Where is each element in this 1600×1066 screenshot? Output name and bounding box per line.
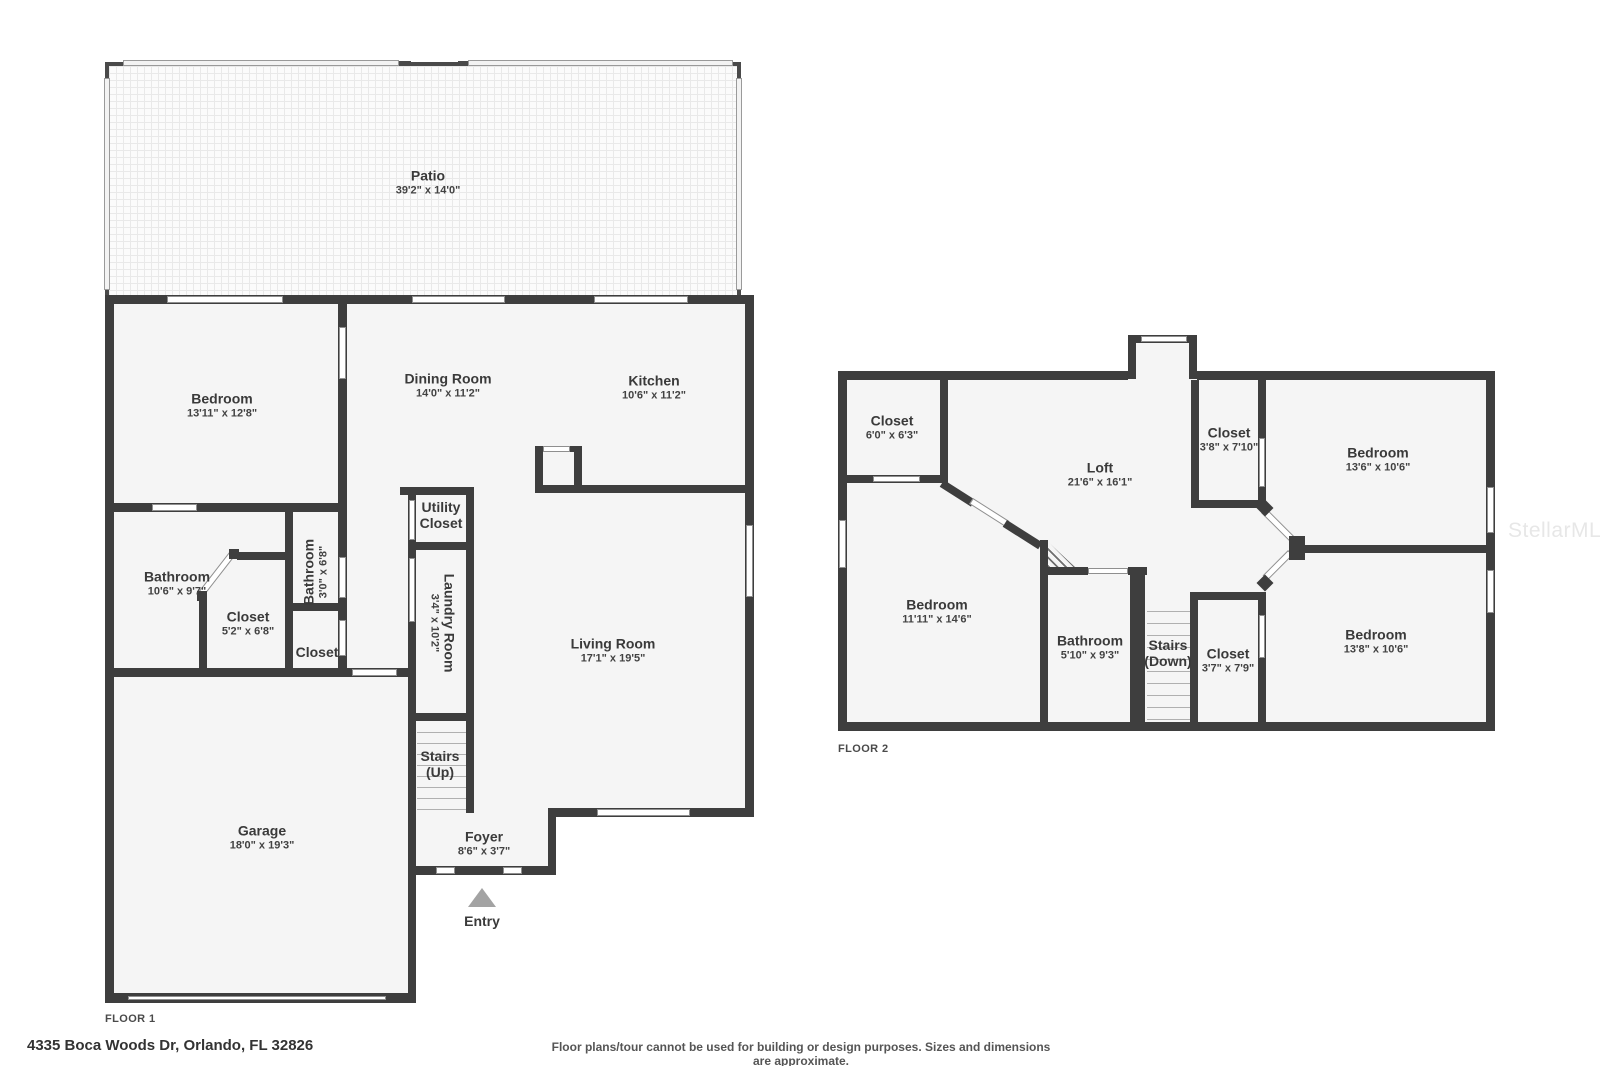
window-or-door [412,296,505,303]
floorplan-page: Patio 39'2" x 14'0" Bedroom 13'11" x 12'… [0,0,1600,1066]
room-label-living: Living Room 17'1" x 19'5" [571,636,656,667]
room-name: Bathroom [1057,633,1123,649]
window-or-door [352,669,397,676]
room-name: Entry [464,913,500,929]
room-name: Closet [420,515,463,531]
wall [1190,592,1266,600]
room-dims: 3'0" x 6'8" [317,539,332,605]
room-name: Closet [866,413,918,429]
window-or-door [594,296,688,303]
room-dims: 21'6" x 16'1" [1068,476,1133,491]
room-name: (Up) [421,764,460,780]
room-label-dining: Dining Room 14'0" x 11'2" [404,371,491,402]
room-label-bathroom2-f1: Bathroom 3'0" x 6'8" [301,539,332,605]
wall [466,487,474,813]
room-dims: 11'11" x 14'6" [902,613,972,628]
room-name: (Down) [1144,653,1191,669]
wall [199,598,207,668]
wall [940,380,948,483]
wall-cap [229,549,239,559]
room-dims: 3'8" x 7'10" [1200,441,1258,456]
window-or-door [167,296,283,303]
room-dims: 10'6" x 11'2" [622,389,686,404]
patio-screen [468,60,733,66]
room-dims: 14'0" x 11'2" [404,387,491,402]
room-label-bathroom-f1: Bathroom 10'6" x 9'7" [144,569,210,600]
window-or-door [1259,615,1265,658]
room-dims: 13'8" x 10'6" [1344,643,1409,658]
wall [1048,567,1088,575]
room-label-garage: Garage 18'0" x 19'3" [230,823,295,854]
entry-label: Entry [464,913,500,929]
wall [1191,500,1266,508]
room-label-closet-tr-f2: Closet 3'8" x 7'10" [1200,425,1258,456]
room-label-closet-b-f2: Closet 3'7" x 7'9" [1202,646,1254,677]
wall [1130,567,1145,731]
wall [408,866,556,875]
room-dims: 13'6" x 10'6" [1346,461,1411,476]
room-label-closet-tl-f2: Closet 6'0" x 6'3" [866,413,918,444]
window-or-door [409,558,415,622]
wall [535,485,754,493]
room-name: Kitchen [622,373,686,389]
room-dims: 18'0" x 19'3" [230,839,295,854]
window-or-door [339,557,346,598]
room-name: Closet [296,644,339,660]
room-label-stairs-down: Stairs (Down) [1144,637,1191,669]
wall [1258,592,1266,731]
wall [408,542,474,550]
room-label-stairs-up: Stairs (Up) [421,748,460,780]
room-label-laundry: Laundry Room 3'4" x 10'2" [427,574,458,673]
wall [105,295,114,1003]
room-name: Bedroom [187,391,257,407]
wall [1486,371,1495,731]
room-dims: 8'6" x 3'7" [458,845,510,860]
entry-arrow-icon [468,888,496,907]
window-or-door [436,867,455,874]
room-name: Living Room [571,636,656,652]
window-or-door [152,504,197,511]
window-or-door [1259,438,1265,487]
room-name: Bathroom [301,539,317,605]
patio-screen [736,78,742,290]
room-name: Patio [396,168,461,184]
room-label-kitchen: Kitchen 10'6" x 11'2" [622,373,686,404]
wall [548,808,556,875]
room-name: Utility [420,499,463,515]
room-name: Closet [222,609,274,625]
room-label-patio: Patio 39'2" x 14'0" [396,168,461,199]
wall [1300,545,1487,553]
room-dims: 5'2" x 6'8" [222,625,274,640]
room-dims: 39'2" x 14'0" [396,184,461,199]
room-name: Dining Room [404,371,491,387]
room-label-bedroom-tr-f2: Bedroom 13'6" x 10'6" [1346,445,1411,476]
window-or-door [1487,570,1494,613]
window-or-door [543,446,570,452]
window-or-door [597,809,690,816]
room-label-utility-closet: Utility Closet [420,499,463,531]
wall [1040,540,1048,731]
room-dims: 17'1" x 19'5" [571,652,656,667]
wall [408,713,474,721]
room-label-loft: Loft 21'6" x 16'1" [1068,460,1133,491]
disclaimer-text: Floor plans/tour cannot be used for buil… [551,1040,1051,1066]
address-text: 4335 Boca Woods Dr, Orlando, FL 32826 [27,1037,313,1054]
window-or-door [746,525,753,597]
patio-screen [104,78,110,290]
room-name: Bathroom [144,569,210,585]
room-dims: 6'0" x 6'3" [866,429,918,444]
wall [838,722,1495,731]
room-label-bedroom-f1: Bedroom 13'11" x 12'8" [187,391,257,422]
wall-cap [1289,536,1305,560]
room-name: Bedroom [1344,627,1409,643]
wall [574,448,582,493]
room-label-closet2-f1: Closet [296,644,339,660]
floor1-tag: FLOOR 1 [105,1013,155,1025]
floor2-tag: FLOOR 2 [838,743,888,755]
room-dims: 13'11" x 12'8" [187,407,257,422]
room-dims: 5'10" x 9'3" [1057,649,1123,664]
patio-screen [123,60,399,66]
room-label-foyer: Foyer 8'6" x 3'7" [458,829,510,860]
wall [105,503,347,512]
room-name: Stairs [421,748,460,764]
wall [1191,380,1199,508]
room-label-closet-f1: Closet 5'2" x 6'8" [222,609,274,640]
room-name: Stairs [1144,637,1191,653]
window-or-door [873,476,920,482]
wall [285,503,293,677]
patio-wall [399,61,411,66]
room-name: Closet [1200,425,1258,441]
window-or-door [339,327,346,379]
room-name: Bedroom [902,597,972,613]
room-name: Foyer [458,829,510,845]
room-name: Garage [230,823,295,839]
window-or-door [1487,487,1494,533]
window-or-door [1141,336,1187,342]
room-dims: 3'7" x 7'9" [1202,662,1254,677]
wall [1189,335,1197,379]
room-name: Closet [1202,646,1254,662]
wall [838,371,1128,380]
wall [1197,371,1495,380]
room-name: Loft [1068,460,1133,476]
window-or-door [1088,568,1128,574]
window-or-door [839,520,846,568]
room-name: Bedroom [1346,445,1411,461]
window-or-door [128,996,386,1000]
room-label-bathroom-f2: Bathroom 5'10" x 9'3" [1057,633,1123,664]
room-dims: 10'6" x 9'7" [144,585,210,600]
room-label-bedroom-br-f2: Bedroom 13'8" x 10'6" [1344,627,1409,658]
wall [237,552,293,560]
window-or-door [503,867,522,874]
room-label-bedroom-l-f2: Bedroom 11'11" x 14'6" [902,597,972,628]
wall [400,487,474,495]
room-name: Laundry Room [442,574,458,673]
room-dims: 3'4" x 10'2" [427,574,442,673]
window-or-door [339,620,346,656]
window-or-door [409,500,415,540]
stellar-mls-watermark: StellarMLS [1508,519,1600,543]
